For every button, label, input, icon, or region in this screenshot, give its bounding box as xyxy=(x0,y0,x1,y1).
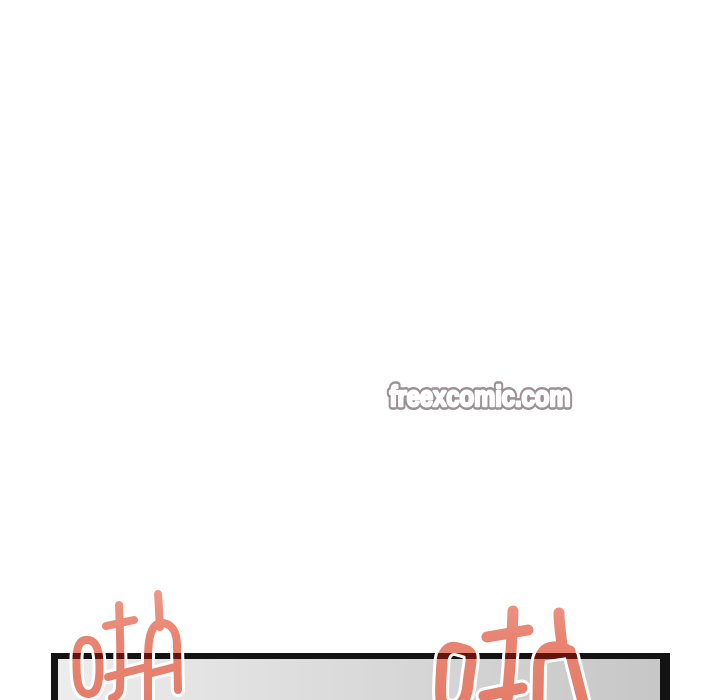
svg-text:freexcomic.com: freexcomic.com xyxy=(390,380,571,413)
